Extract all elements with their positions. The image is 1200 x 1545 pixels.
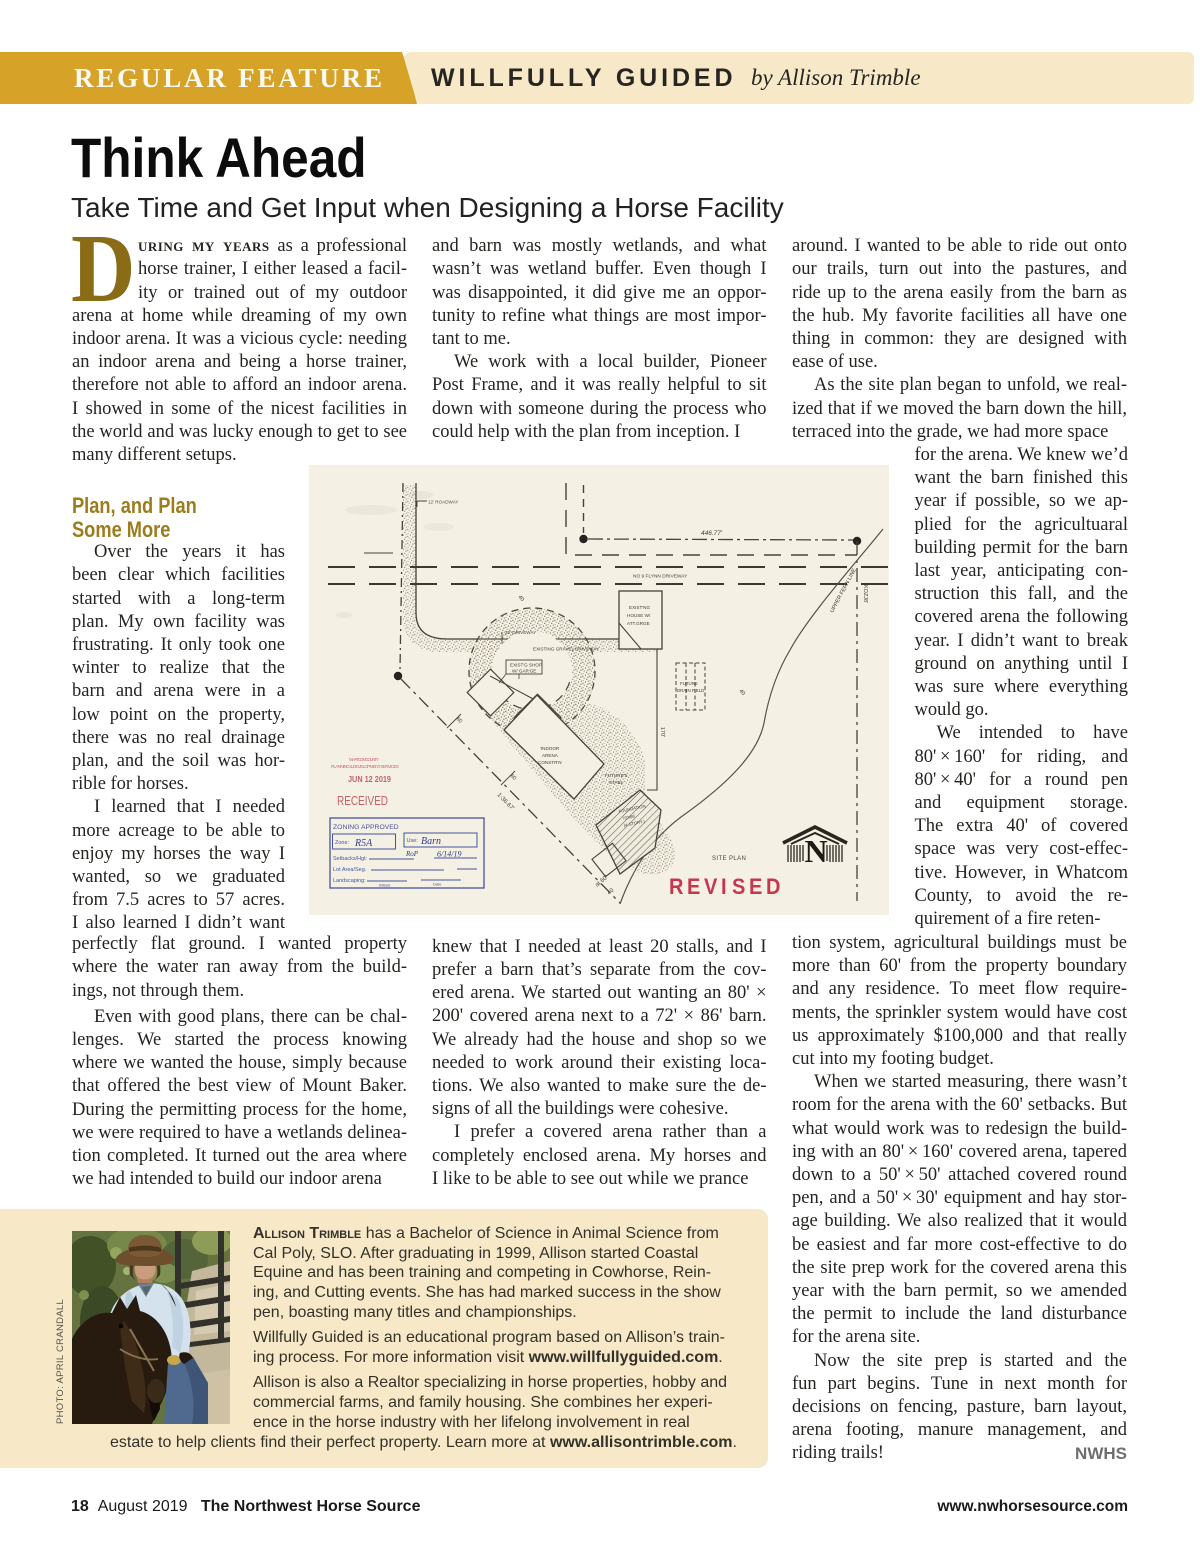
svg-text:12' ROADWAY: 12' ROADWAY [428, 500, 459, 505]
svg-text:JUN 12 2019: JUN 12 2019 [348, 775, 391, 784]
svg-text:W/ GAR'GE: W/ GAR'GE [512, 669, 536, 674]
svg-text:'INDOOR: 'INDOOR [540, 746, 560, 751]
svg-text:WHATCOM COUNTY: WHATCOM COUNTY [349, 757, 379, 762]
svg-text:Zone:: Zone: [335, 840, 350, 846]
svg-text:R5A: R5A [354, 838, 373, 849]
svg-text:ZONING APPROVED: ZONING APPROVED [333, 824, 399, 831]
svg-text:ARENA: ARENA [542, 753, 559, 758]
svg-text:Initials: Initials [379, 883, 390, 888]
svg-text:R: R [669, 875, 683, 899]
svg-text:PLANNING & DEVELOPMENT SERVICE: PLANNING & DEVELOPMENT SERVICES [331, 764, 399, 769]
svg-text:CONSTR'N: CONSTR'N [538, 760, 562, 765]
svg-text:DRAIN FIELD: DRAIN FIELD [677, 688, 704, 693]
svg-text:E: E [687, 875, 700, 899]
svg-text:FUTURE'S: FUTURE'S [605, 773, 628, 778]
svg-text:S: S [732, 875, 745, 899]
svg-text:KOZJ8': KOZJ8' [862, 585, 868, 603]
svg-text:SITE PLAN: SITE PLAN [712, 856, 746, 862]
svg-text:6/14/19: 6/14/19 [437, 850, 461, 859]
svg-text:Lot Area/Seg.: Lot Area/Seg. [333, 867, 367, 873]
svg-text:Barn: Barn [421, 836, 441, 847]
svg-text:Setbacks/Hgt:: Setbacks/Hgt: [333, 856, 368, 862]
svg-text:Landscaping:: Landscaping: [333, 878, 366, 884]
svg-text:Use:: Use: [407, 838, 419, 844]
svg-text:HOUSE W/: HOUSE W/ [627, 613, 651, 618]
svg-text:V: V [704, 875, 717, 899]
svg-text:I: I [721, 875, 727, 899]
svg-text:170': 170' [659, 727, 665, 737]
svg-text:N: N [804, 833, 827, 869]
svg-text:446.77': 446.77' [701, 530, 723, 537]
svg-text:EXIST'G SHOP: EXIST'G SHOP [510, 663, 542, 668]
svg-text:NO 9 FLYNN DRIVEWAY: NO 9 FLYNN DRIVEWAY [633, 574, 688, 580]
svg-text:E: E [749, 875, 762, 899]
svg-text:RECEIVED: RECEIVED [337, 794, 388, 808]
svg-text:ATT.GRGE: ATT.GRGE [627, 621, 650, 626]
svg-text:D: D [766, 875, 780, 899]
svg-text:RoP: RoP [405, 850, 419, 858]
svg-text:STABL: STABL [609, 780, 624, 785]
svg-text:EXIST'NG: EXIST'NG [629, 605, 650, 610]
svg-text:FUTURE: FUTURE [680, 681, 698, 686]
svg-text:EXISTING GRAVEL DRIVEWAY: EXISTING GRAVEL DRIVEWAY [533, 647, 599, 652]
svg-text:20' DRIVEWAY: 20' DRIVEWAY [505, 630, 536, 635]
svg-text:Date: Date [433, 882, 442, 887]
